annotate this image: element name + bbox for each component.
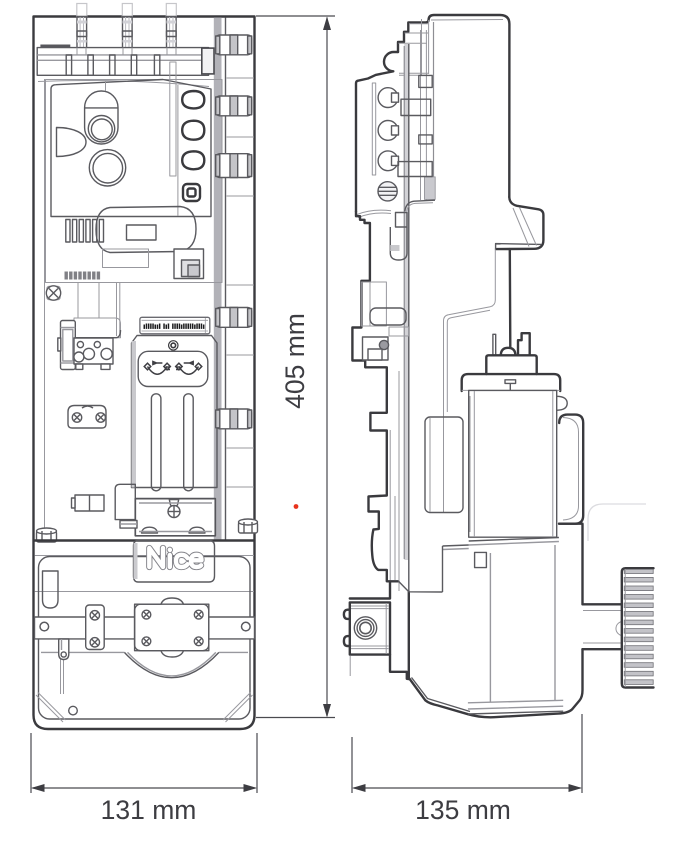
svg-text:135 mm: 135 mm <box>415 795 511 825</box>
svg-text:405 mm: 405 mm <box>280 313 310 409</box>
svg-text:131 mm: 131 mm <box>101 795 197 825</box>
